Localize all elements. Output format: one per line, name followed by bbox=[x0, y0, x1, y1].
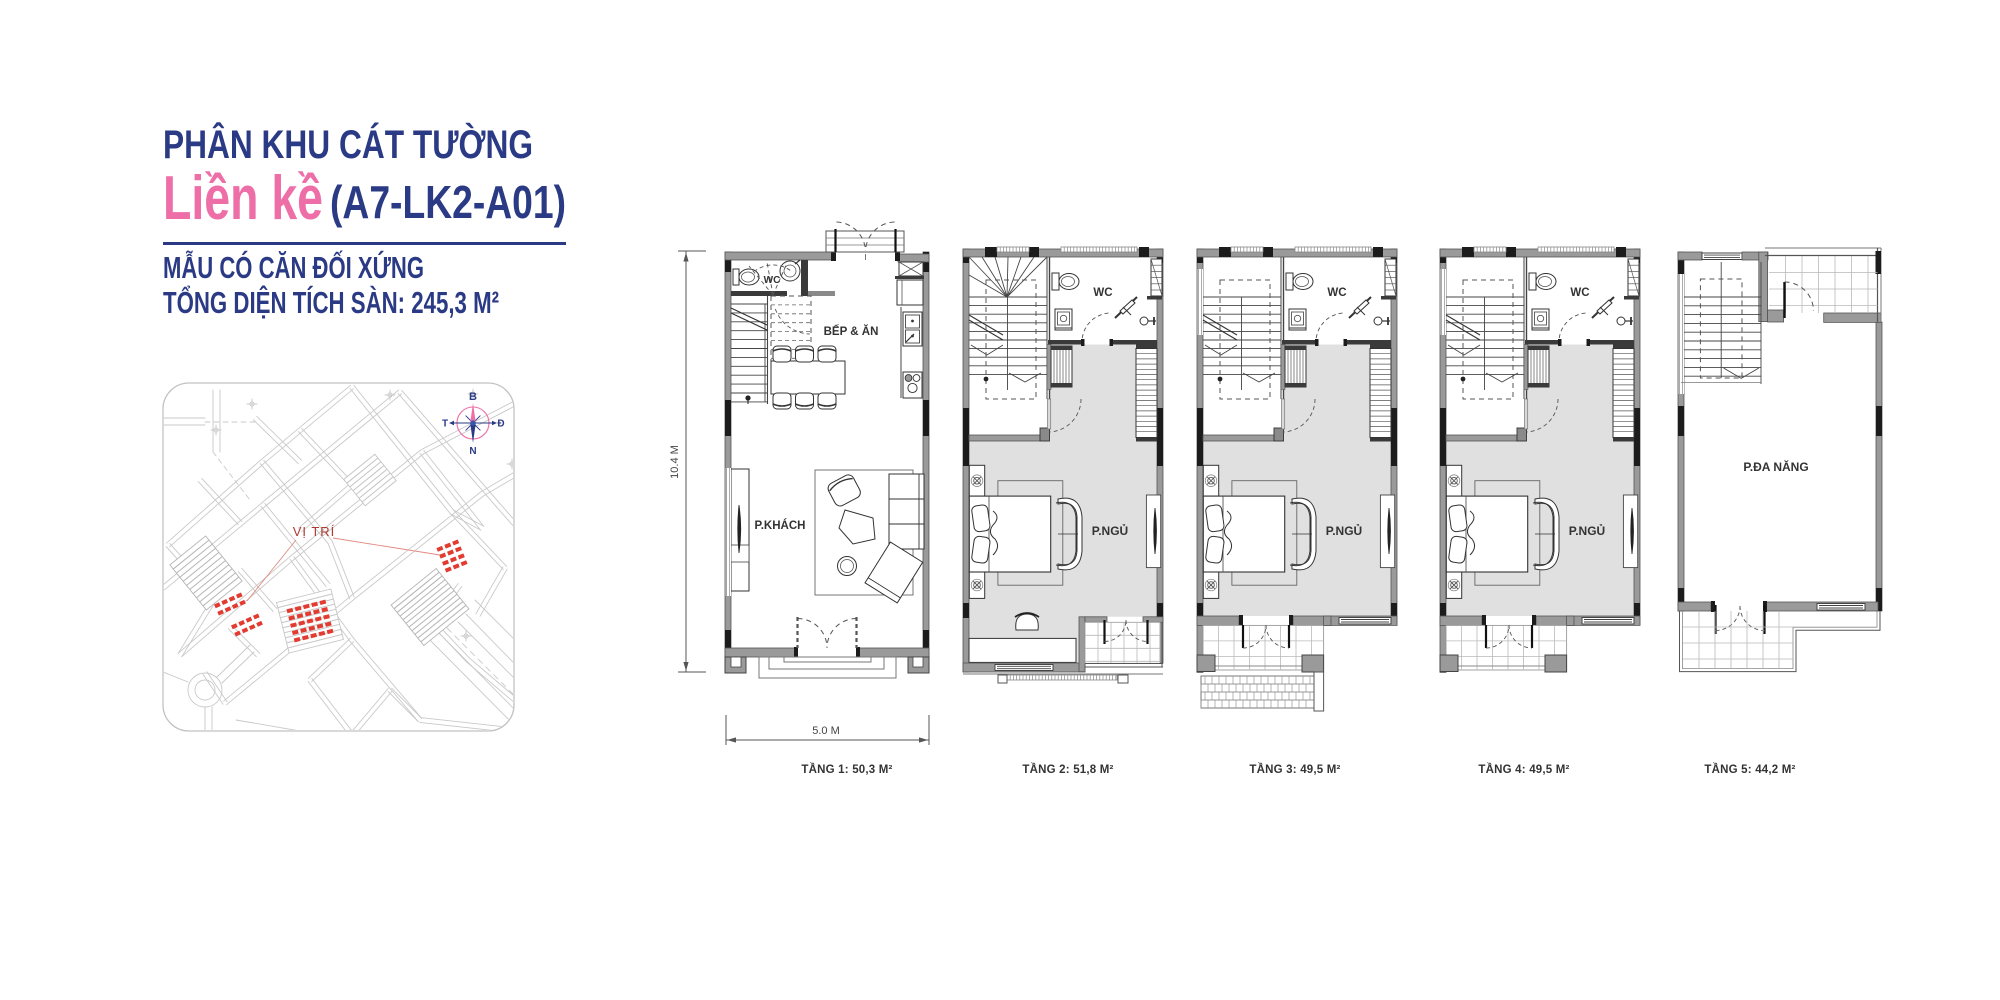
svg-text:WC: WC bbox=[1570, 287, 1589, 299]
svg-text:P.KHÁCH: P.KHÁCH bbox=[755, 519, 806, 532]
svg-text:PHÂN KHU CÁT TƯỜNG: PHÂN KHU CÁT TƯỜNG bbox=[163, 121, 533, 167]
svg-text:VỊ TRÍ: VỊ TRÍ bbox=[293, 524, 336, 539]
svg-text:WC: WC bbox=[1093, 287, 1112, 299]
svg-text:TẦNG 2: 51,8 M²: TẦNG 2: 51,8 M² bbox=[1022, 763, 1113, 776]
svg-text:T: T bbox=[442, 419, 448, 430]
svg-text:B: B bbox=[469, 391, 477, 403]
svg-text:P.ĐA NĂNG: P.ĐA NĂNG bbox=[1743, 459, 1808, 474]
svg-text:TẦNG 5: 44,2 M²: TẦNG 5: 44,2 M² bbox=[1704, 763, 1795, 776]
svg-text:10.4 M: 10.4 M bbox=[669, 445, 681, 479]
svg-text:(A7-LK2-A01): (A7-LK2-A01) bbox=[330, 176, 566, 228]
svg-text:Liền kề: Liền kề bbox=[163, 164, 323, 233]
svg-text:MẪU CÓ CĂN ĐỐI XỨNG: MẪU CÓ CĂN ĐỐI XỨNG bbox=[163, 249, 424, 285]
svg-text:N: N bbox=[469, 446, 476, 457]
svg-text:P.NGỦ: P.NGỦ bbox=[1326, 523, 1362, 538]
svg-text:TẦNG 3: 49,5 M²: TẦNG 3: 49,5 M² bbox=[1249, 763, 1340, 776]
svg-text:5.0 M: 5.0 M bbox=[812, 725, 840, 737]
svg-text:P.NGỦ: P.NGỦ bbox=[1092, 523, 1128, 538]
svg-text:Đ: Đ bbox=[497, 419, 504, 430]
svg-text:WC: WC bbox=[1327, 287, 1346, 299]
svg-text:WC: WC bbox=[764, 275, 781, 286]
svg-text:TẦNG 4: 49,5 M²: TẦNG 4: 49,5 M² bbox=[1478, 763, 1569, 776]
svg-text:P.NGỦ: P.NGỦ bbox=[1569, 523, 1605, 538]
svg-text:BẾP & ĂN: BẾP & ĂN bbox=[824, 325, 879, 338]
svg-text:TỔNG DIỆN TÍCH SÀN: 245,3 M²: TỔNG DIỆN TÍCH SÀN: 245,3 M² bbox=[163, 284, 499, 320]
svg-text:TẦNG 1: 50,3 M²: TẦNG 1: 50,3 M² bbox=[801, 763, 892, 776]
